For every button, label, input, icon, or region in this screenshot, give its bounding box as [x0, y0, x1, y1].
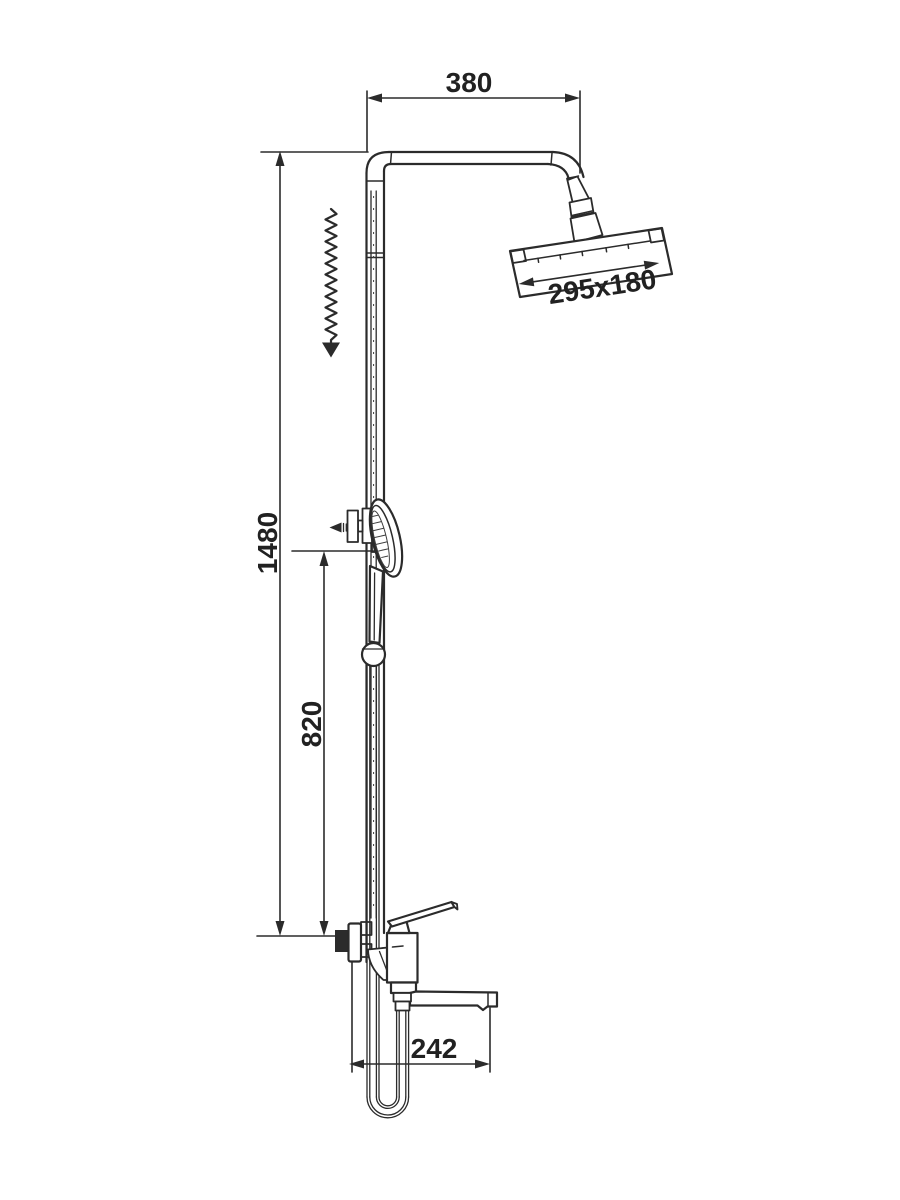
- dimension-label-handshower-height: 820: [296, 701, 327, 748]
- mixer-support-wedge: [368, 948, 388, 981]
- elbow-inner-arc: [548, 164, 569, 178]
- spout-arm: [410, 992, 497, 1011]
- escutcheon-flange: [349, 924, 362, 962]
- mixer-lever-handle: [388, 902, 455, 927]
- dimension-arm-width: 380: [367, 67, 580, 173]
- joint-tick: [551, 153, 552, 165]
- hose-union-nut: [394, 993, 412, 1002]
- arrowhead-down: [276, 921, 285, 936]
- arrowhead-up: [320, 551, 329, 566]
- nozzle-tick: [538, 258, 539, 262]
- hose-loop-arc: [376, 1097, 399, 1108]
- corner-inner-arc: [384, 164, 391, 171]
- mixer-valve: [368, 902, 497, 1011]
- wall-union-block: [335, 930, 349, 952]
- nozzle-tick: [582, 252, 583, 256]
- mixer-body-dash: [393, 946, 404, 947]
- dimension-handshower-height: 820: [292, 551, 374, 936]
- mixer-body: [387, 933, 418, 983]
- dimension-label-total-height: 1480: [252, 512, 283, 574]
- nozzle-tick: [628, 244, 629, 248]
- hose-loop-arc: [379, 1097, 397, 1106]
- shower-arm-connector: [567, 176, 603, 243]
- shower-hose: [367, 665, 409, 1118]
- zigzag-arrowhead: [322, 343, 340, 358]
- water-flow-zigzag-arrow: [322, 209, 340, 358]
- hose-nut-ball: [362, 643, 385, 666]
- dimension-label-arm-width: 380: [446, 67, 493, 98]
- joint-tick: [391, 152, 392, 164]
- arrowhead-right: [475, 1060, 490, 1069]
- nozzle-tick: [560, 255, 561, 259]
- zigzag-line: [326, 209, 337, 344]
- elbow-outer-arc: [553, 152, 584, 177]
- knob-pointer-arrowhead: [330, 523, 342, 533]
- handshower-handle: [370, 566, 384, 643]
- arrowhead-down: [320, 921, 329, 936]
- technical-drawing-canvas: 1480 820 380 242: [0, 0, 900, 1200]
- dimension-label-spout-reach: 242: [411, 1033, 458, 1064]
- corner-outer-arc: [367, 152, 390, 173]
- nozzle-tick: [606, 248, 607, 252]
- arrowhead-left: [367, 94, 382, 103]
- dimension-total-height: 1480: [252, 151, 368, 936]
- arrowhead-right: [565, 94, 580, 103]
- arrowhead-up: [276, 151, 285, 166]
- hose-union-nut: [396, 1002, 410, 1011]
- hand-shower: [362, 496, 408, 666]
- holder-knob: [348, 511, 359, 543]
